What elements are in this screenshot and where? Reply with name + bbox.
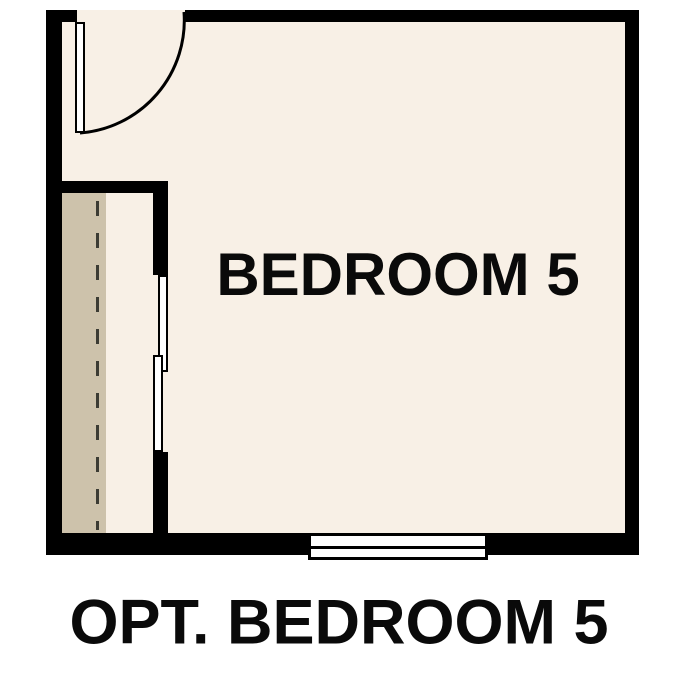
closet-bypass-door-inner-icon (153, 355, 163, 452)
closet-partition-upper (153, 193, 168, 275)
door-leaf-icon (75, 22, 85, 133)
doorway-floor-patch (77, 10, 185, 22)
wall-left (46, 10, 62, 555)
closet-floor (62, 193, 106, 533)
wall-right (625, 10, 639, 555)
wall-top-right-segment (185, 10, 639, 22)
window-icon (308, 533, 488, 560)
closet-header-wall (62, 181, 168, 193)
room-label: BEDROOM 5 (216, 245, 579, 305)
plan-caption: OPT. BEDROOM 5 (69, 592, 608, 655)
closet-partition-lower (153, 452, 168, 533)
window-divider (311, 546, 485, 549)
floorplan-canvas: BEDROOM 5 OPT. BEDROOM 5 (0, 0, 687, 687)
